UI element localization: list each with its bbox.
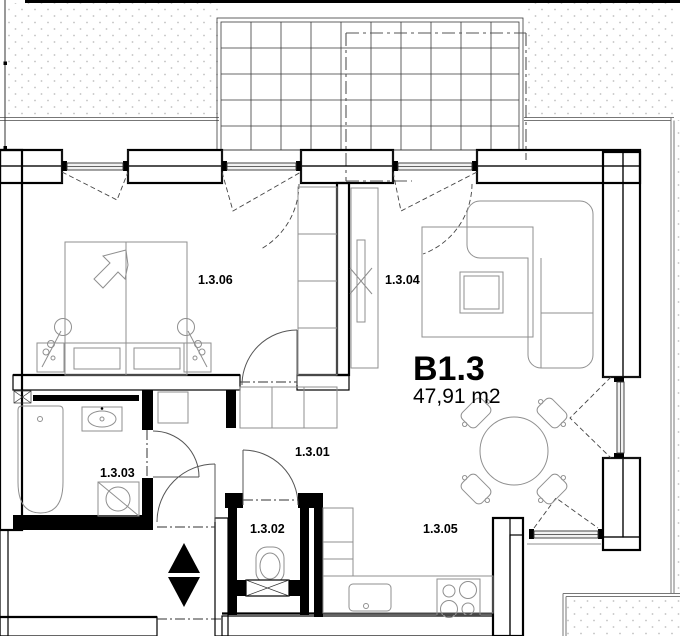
dining-table xyxy=(480,417,548,485)
room-label-bath: 1.3.03 xyxy=(100,466,135,480)
room-label-hall: 1.3.01 xyxy=(295,445,330,459)
room-label-living: 1.3.04 xyxy=(385,273,420,287)
terrace-bottom-right xyxy=(566,596,680,636)
unit-area: 47,91 m2 xyxy=(413,385,501,408)
terrace-top-right xyxy=(524,3,674,117)
bathroom-counter xyxy=(33,395,139,401)
room-label-bedroom: 1.3.06 xyxy=(198,273,233,287)
terrace-top-left xyxy=(8,3,219,118)
unit-title: B1.3 xyxy=(413,350,485,388)
floor-plan-drawing: B1.3 47,91 m2 1.3.06 1.3.04 1.3.01 1.3.0… xyxy=(0,0,680,636)
room-label-wc: 1.3.02 xyxy=(250,522,285,536)
plot-border-top xyxy=(25,0,680,3)
floor-plan-page: B1.3 47,91 m2 1.3.06 1.3.04 1.3.01 1.3.0… xyxy=(0,0,680,636)
room-label-kitchen: 1.3.05 xyxy=(423,522,458,536)
wc-duct-box xyxy=(237,580,300,596)
terrace-right-strip xyxy=(675,120,680,593)
